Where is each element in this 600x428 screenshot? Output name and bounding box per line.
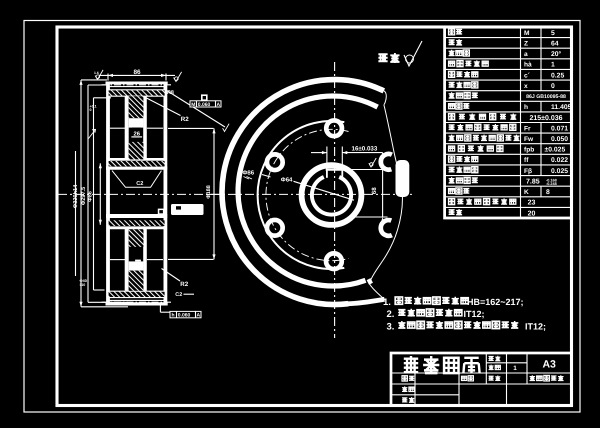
svg-text:0.022: 0.022 (551, 157, 568, 164)
svg-text:M: M (524, 30, 530, 37)
svg-text:c´: c´ (524, 72, 530, 79)
svg-text:215±0.036: 215±0.036 (529, 115, 562, 122)
svg-text:Φ297.5: Φ297.5 (81, 187, 87, 205)
svg-text:fpb: fpb (524, 147, 534, 154)
svg-text:Fr: Fr (524, 125, 531, 132)
svg-text:110: 110 (80, 283, 86, 287)
svg-text:16±0.033: 16±0.033 (352, 146, 378, 153)
svg-text:h: h (524, 104, 528, 111)
svg-text:A: A (217, 102, 221, 108)
svg-text:-0.248: -0.248 (546, 182, 557, 186)
svg-text:HB=162~217;: HB=162~217; (467, 297, 524, 307)
svg-text:0.060: 0.060 (178, 313, 191, 319)
svg-text:2.: 2. (387, 309, 395, 320)
svg-text:Fβ: Fβ (524, 168, 532, 175)
svg-text:3.: 3. (387, 321, 395, 332)
svg-text:23: 23 (528, 200, 536, 207)
svg-text:86J GB10095-88: 86J GB10095-88 (526, 94, 566, 100)
svg-text:IT12;: IT12; (464, 309, 485, 319)
svg-text:IT12;: IT12; (525, 321, 546, 331)
svg-text:a: a (524, 51, 528, 58)
svg-text:0.060: 0.060 (198, 102, 211, 108)
svg-text:0.025: 0.025 (551, 168, 568, 175)
svg-text:68: 68 (371, 187, 378, 194)
svg-text:0.25: 0.25 (551, 72, 564, 79)
svg-text:R2: R2 (180, 281, 188, 288)
svg-text:Φ64: Φ64 (281, 177, 293, 184)
svg-text:Φ86: Φ86 (88, 191, 94, 202)
svg-text:R8: R8 (167, 90, 174, 96)
svg-text:64: 64 (551, 41, 559, 48)
svg-text:1: 1 (551, 62, 555, 69)
svg-text:C2: C2 (136, 181, 143, 187)
svg-text:11.405: 11.405 (551, 104, 572, 111)
svg-text:R2: R2 (181, 116, 189, 123)
svg-text:0.071: 0.071 (551, 125, 568, 132)
svg-text:0.050: 0.050 (551, 136, 568, 143)
svg-text:K: K (524, 189, 529, 196)
svg-text:h: h (172, 313, 175, 319)
svg-text:C2: C2 (175, 292, 182, 298)
svg-text:5: 5 (551, 30, 555, 37)
svg-text:7.85: 7.85 (526, 178, 540, 185)
svg-text:M: M (191, 102, 195, 108)
svg-text:1.6: 1.6 (94, 71, 99, 75)
svg-text:1: 1 (513, 365, 517, 372)
svg-text:Φ188: Φ188 (206, 185, 212, 198)
svg-text:x: x (524, 83, 528, 90)
svg-text:Φ320h14: Φ320h14 (72, 184, 79, 208)
svg-text:Φ86: Φ86 (243, 169, 255, 176)
svg-text:0: 0 (90, 108, 92, 112)
svg-text:1.: 1. (383, 297, 391, 308)
svg-text:20°: 20° (551, 51, 562, 58)
svg-text:86: 86 (133, 69, 141, 76)
svg-text:±0.025: ±0.025 (545, 147, 566, 154)
svg-text:Z: Z (524, 40, 528, 47)
svg-text:A: A (197, 313, 201, 319)
svg-text:20: 20 (528, 210, 536, 217)
svg-text:0: 0 (551, 83, 555, 90)
svg-text:8: 8 (546, 189, 550, 196)
svg-text:A3: A3 (542, 359, 556, 371)
svg-text:hà: hà (524, 62, 532, 69)
svg-text:Fw: Fw (524, 136, 534, 143)
